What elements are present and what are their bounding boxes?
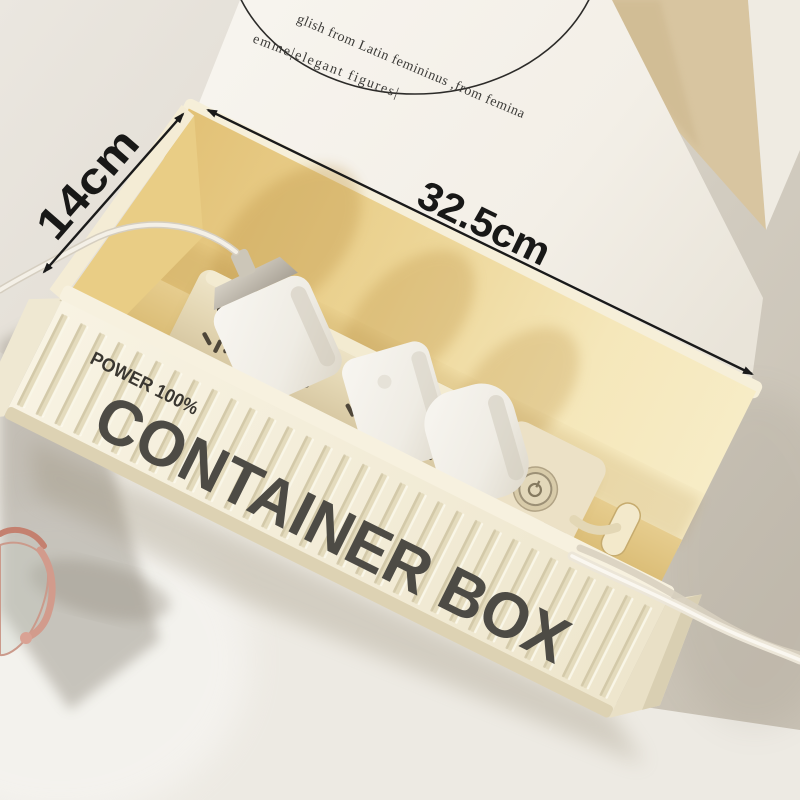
eyeglasses-temple-tip [20, 632, 32, 644]
photo-canvas: glish from Latin femininus ,from femina … [0, 0, 800, 800]
product-photo-scene: glish from Latin femininus ,from femina … [0, 0, 800, 800]
